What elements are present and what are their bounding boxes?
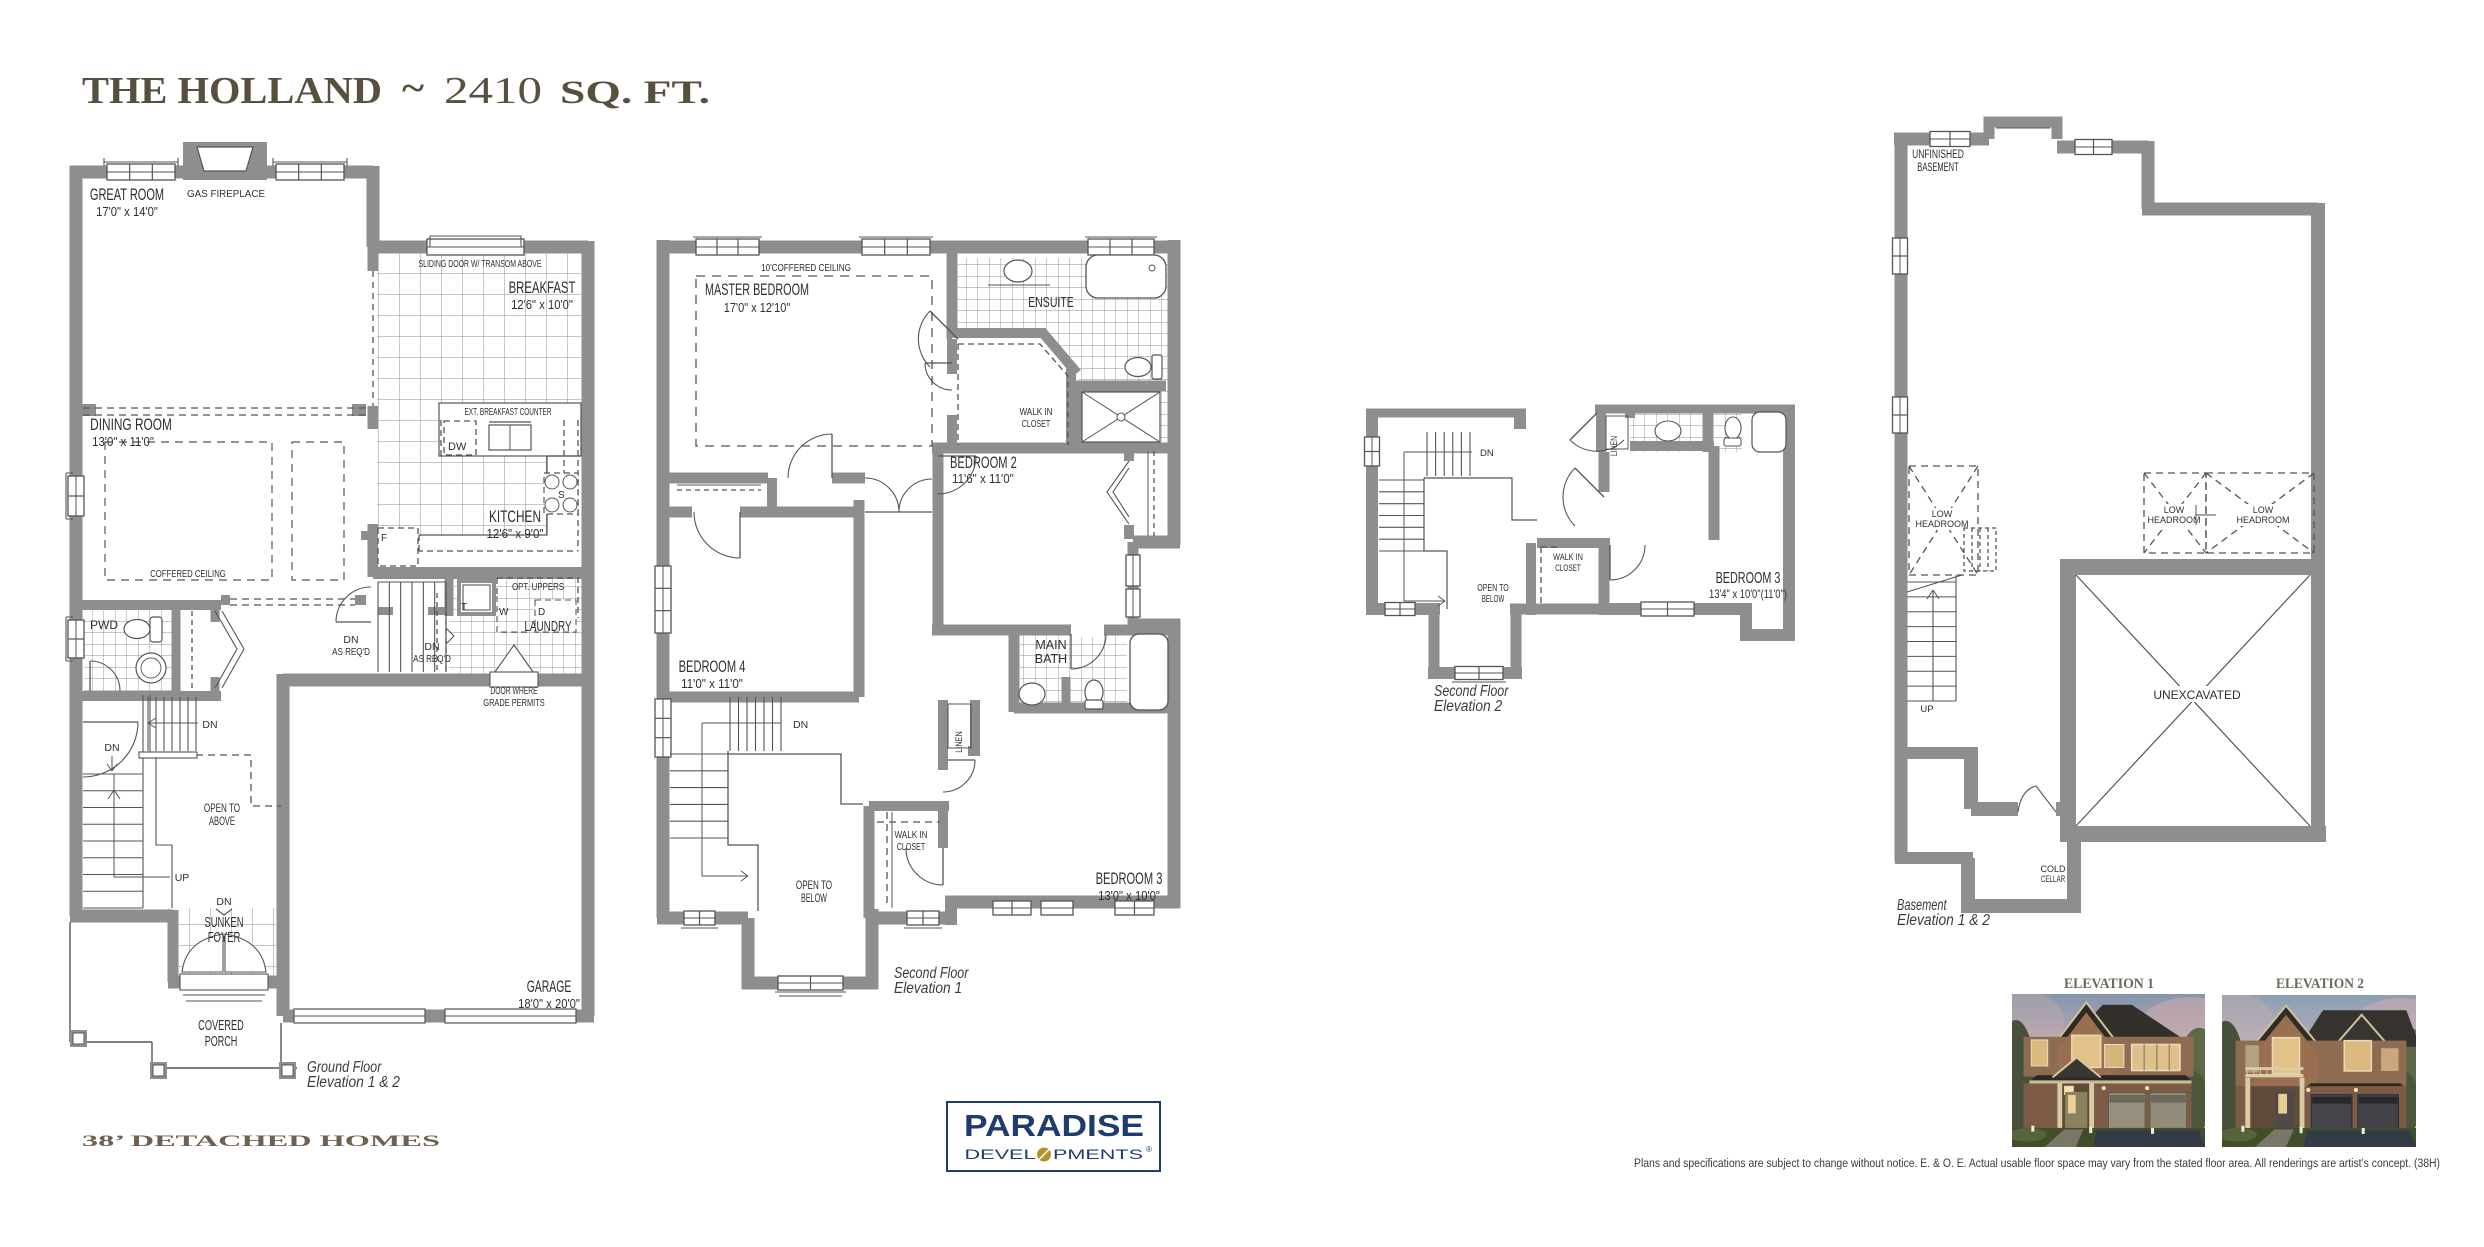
svg-text:CELLAR: CELLAR bbox=[2041, 874, 2066, 884]
svg-text:OPEN TO: OPEN TO bbox=[1477, 583, 1509, 594]
svg-text:LAUNDRY: LAUNDRY bbox=[524, 618, 571, 635]
svg-text:DOOR WHERE: DOOR WHERE bbox=[490, 685, 537, 697]
svg-text:BREAKFAST: BREAKFAST bbox=[509, 279, 576, 297]
svg-text:OPEN TO: OPEN TO bbox=[796, 880, 832, 892]
svg-text:AS REQ'D: AS REQ'D bbox=[332, 646, 370, 658]
svg-text:Elevation 2: Elevation 2 bbox=[1434, 698, 1503, 715]
svg-text:13'4" x 10'0"(11'0"): 13'4" x 10'0"(11'0") bbox=[1709, 587, 1787, 601]
svg-text:DN: DN bbox=[202, 719, 217, 731]
svg-text:Elevation 1 & 2: Elevation 1 & 2 bbox=[1897, 912, 1990, 929]
svg-text:UNFINISHED: UNFINISHED bbox=[1912, 149, 1964, 161]
svg-text:~: ~ bbox=[402, 68, 424, 108]
svg-text:LOW: LOW bbox=[2253, 505, 2274, 515]
svg-text:UNEXCAVATED: UNEXCAVATED bbox=[2153, 688, 2241, 702]
svg-text:17'0" x 14'0": 17'0" x 14'0" bbox=[96, 205, 158, 219]
svg-text:13'0" x 10'0": 13'0" x 10'0" bbox=[1098, 889, 1160, 903]
svg-text:GAS FIREPLACE: GAS FIREPLACE bbox=[187, 188, 265, 200]
svg-text:COVERED: COVERED bbox=[198, 1018, 244, 1034]
svg-text:COFFERED CEILING: COFFERED CEILING bbox=[150, 568, 226, 580]
svg-text:OPEN TO: OPEN TO bbox=[204, 803, 240, 815]
svg-text:DN: DN bbox=[343, 634, 358, 646]
svg-text:HEADROOM: HEADROOM bbox=[2236, 515, 2289, 525]
svg-text:BEDROOM 3: BEDROOM 3 bbox=[1096, 870, 1163, 888]
svg-text:10'COFFERED CEILING: 10'COFFERED CEILING bbox=[761, 262, 851, 274]
svg-text:CLOSET: CLOSET bbox=[1022, 418, 1051, 430]
svg-text:DINING ROOM: DINING ROOM bbox=[90, 416, 172, 434]
svg-text:12'6" x 10'0": 12'6" x 10'0" bbox=[511, 298, 573, 312]
svg-text:DEVEL: DEVEL bbox=[965, 1147, 1037, 1162]
svg-text:MAIN: MAIN bbox=[1035, 638, 1066, 652]
svg-text:WALK IN: WALK IN bbox=[894, 829, 927, 841]
svg-text:KITCHEN: KITCHEN bbox=[489, 508, 541, 526]
svg-text:PORCH: PORCH bbox=[205, 1034, 238, 1050]
svg-text:F: F bbox=[381, 533, 387, 544]
svg-text:W: W bbox=[499, 607, 509, 618]
svg-text:PWD: PWD bbox=[90, 618, 118, 632]
svg-text:LINEN: LINEN bbox=[954, 731, 965, 753]
svg-text:DN: DN bbox=[424, 641, 439, 653]
svg-text:WALK IN: WALK IN bbox=[1019, 406, 1052, 418]
svg-text:17'0" x 12'10": 17'0" x 12'10" bbox=[724, 301, 791, 315]
svg-text:LINEN: LINEN bbox=[1609, 436, 1619, 456]
svg-text:ELEVATION 1: ELEVATION 1 bbox=[2064, 976, 2154, 992]
svg-text:SQ. FT.: SQ. FT. bbox=[560, 75, 710, 111]
svg-text:D: D bbox=[538, 607, 545, 618]
svg-text:HEADROOM: HEADROOM bbox=[2147, 515, 2200, 525]
svg-text:FOYER: FOYER bbox=[208, 930, 241, 946]
svg-text:BEDROOM 2: BEDROOM 2 bbox=[950, 454, 1017, 472]
svg-text:2410: 2410 bbox=[444, 70, 542, 112]
svg-text:LOW: LOW bbox=[2164, 505, 2185, 515]
svg-text:MASTER BEDROOM: MASTER BEDROOM bbox=[705, 281, 809, 299]
svg-text:Elevation 1 & 2: Elevation 1 & 2 bbox=[307, 1074, 400, 1091]
svg-text:THE HOLLAND: THE HOLLAND bbox=[82, 70, 382, 112]
svg-text:OPT. UPPERS: OPT. UPPERS bbox=[512, 581, 564, 593]
svg-text:PARADISE: PARADISE bbox=[964, 1108, 1144, 1143]
svg-text:HEADROOM: HEADROOM bbox=[1915, 519, 1968, 529]
svg-text:ELEVATION 2: ELEVATION 2 bbox=[2276, 976, 2364, 992]
svg-text:S: S bbox=[558, 490, 565, 501]
svg-text:ENSUITE: ENSUITE bbox=[1028, 295, 1074, 311]
svg-text:BATH: BATH bbox=[1035, 652, 1067, 666]
svg-text:LOW: LOW bbox=[1932, 509, 1953, 519]
svg-text:AS REQ'D: AS REQ'D bbox=[413, 653, 451, 665]
svg-text:Elevation 1: Elevation 1 bbox=[894, 980, 962, 997]
svg-text:WALK IN: WALK IN bbox=[1553, 552, 1583, 563]
svg-text:EXT. BREAKFAST COUNTER: EXT. BREAKFAST COUNTER bbox=[465, 407, 552, 418]
svg-text:BELOW: BELOW bbox=[1482, 594, 1505, 605]
svg-text:DW: DW bbox=[448, 441, 467, 453]
svg-text:11'6" x 11'0": 11'6" x 11'0" bbox=[952, 472, 1014, 486]
svg-text:DN: DN bbox=[216, 896, 231, 908]
svg-text:BEDROOM 4: BEDROOM 4 bbox=[679, 658, 746, 676]
svg-text:®: ® bbox=[1146, 1145, 1152, 1154]
svg-text:11'0" x 11'0": 11'0" x 11'0" bbox=[681, 677, 743, 691]
svg-text:GREAT ROOM: GREAT ROOM bbox=[90, 186, 164, 204]
svg-text:GRADE PERMITS: GRADE PERMITS bbox=[483, 697, 544, 709]
svg-text:DN: DN bbox=[793, 719, 808, 731]
svg-text:UP: UP bbox=[175, 872, 190, 884]
svg-text:ABOVE: ABOVE bbox=[209, 816, 235, 828]
svg-text:Plans and specifications are s: Plans and specifications are subject to … bbox=[1634, 1156, 2440, 1170]
svg-text:SUNKEN: SUNKEN bbox=[204, 915, 243, 931]
svg-text:GARAGE: GARAGE bbox=[527, 978, 572, 996]
svg-text:12'6" x 9'0": 12'6" x 9'0" bbox=[487, 527, 544, 541]
svg-text:DN: DN bbox=[1480, 448, 1494, 459]
svg-text:T: T bbox=[461, 602, 467, 613]
svg-text:18'0" x 20'0": 18'0" x 20'0" bbox=[518, 997, 580, 1011]
svg-text:SLIDING DOOR W/ TRANSOM ABOVE: SLIDING DOOR W/ TRANSOM ABOVE bbox=[419, 259, 542, 270]
svg-text:BEDROOM 3: BEDROOM 3 bbox=[1716, 570, 1781, 587]
svg-text:COLD: COLD bbox=[2040, 864, 2066, 874]
svg-text:DN: DN bbox=[104, 742, 119, 754]
svg-text:BASEMENT: BASEMENT bbox=[1917, 162, 1958, 174]
svg-text:UP: UP bbox=[1920, 704, 1933, 715]
svg-text:CLOSET: CLOSET bbox=[897, 841, 926, 853]
svg-text:PMENTS: PMENTS bbox=[1053, 1147, 1143, 1162]
svg-text:38’ DETACHED HOMES: 38’ DETACHED HOMES bbox=[82, 1133, 440, 1150]
svg-text:CLOSET: CLOSET bbox=[1555, 563, 1581, 574]
svg-text:BELOW: BELOW bbox=[801, 893, 827, 905]
svg-text:13'0" x 11'0": 13'0" x 11'0" bbox=[92, 435, 154, 449]
